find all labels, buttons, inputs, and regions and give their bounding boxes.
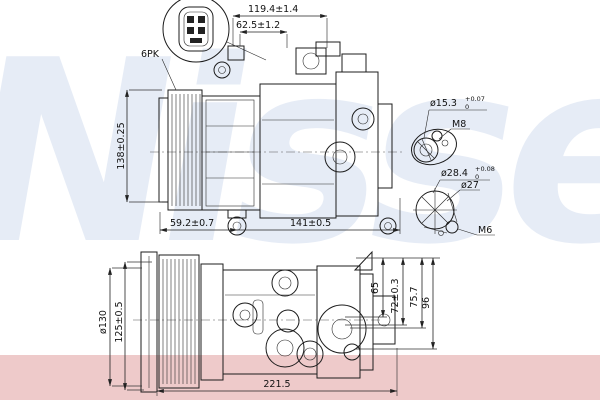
dim-label-length: 141±0.5 [290,218,331,229]
dim-label-96: 96 [421,297,432,309]
dimension-height: 138±0.25 [116,90,162,202]
top-view: 119.4±1.4 62.5±1.2 6PK 138±0.25 [116,4,402,235]
compressor-technical-drawing: Nissens Nissens [0,0,600,400]
port-large-thread-label: M6 [478,225,492,236]
port-flange-small: ø15.3 +0.07 0 M8 [407,95,487,170]
dim-label-offset: 59.2±0.7 [170,218,214,229]
dim-label-pulley-height: 125±0.5 [114,301,125,342]
port-flange-large: ø28.4 +0.08 0 ø27 M6 [413,165,495,236]
pulley-side [159,90,202,210]
dim-label-height: 138±0.25 [116,122,127,169]
dim-label-total-length: 221.5 [263,379,290,390]
port-large-inner-dia-label: ø27 [461,180,479,191]
connector-pin [198,27,205,34]
connector-pin [190,38,202,43]
dimension-total-length: 221.5 [157,348,397,396]
dim-label-pulley-diameter: ø130 [98,310,109,334]
dimension-right-stack: 65 72±0.3 75.7 96 [345,258,440,349]
connector-pin [187,16,194,23]
port-small-diameter-label: ø15.3 [430,98,457,109]
dim-label-75-7: 75.7 [409,286,420,307]
belt-type-callout: 6PK [141,49,176,90]
dim-label-72: 72±0.3 [390,278,401,313]
dim-label-total-width: 119.4±1.4 [248,4,298,15]
bottom-view: ø130 125±0.5 65 72±0.3 7 [98,252,440,396]
connector-pin [187,27,194,34]
connector-pin [198,16,205,23]
pulley-bottom-view [141,252,199,392]
technical-drawing-svg: 119.4±1.4 62.5±1.2 6PK 138±0.25 [0,0,600,400]
dim-label-front-width: 62.5±1.2 [236,20,280,31]
port-small-tol-plus: +0.07 [465,95,485,103]
dimension-front-width: 62.5±1.2 [236,20,287,48]
dimension-pulley-height: 125±0.5 [114,262,152,390]
compressor-body-top-view [202,42,396,235]
port-small-thread-label: M8 [452,119,466,130]
dim-label-65: 65 [370,282,381,294]
compressor-body-bottom-view [201,252,395,380]
port-large-diameter-label: ø28.4 [441,168,468,179]
belt-type-label: 6PK [141,49,160,60]
port-large-tol-plus: +0.08 [475,165,495,173]
